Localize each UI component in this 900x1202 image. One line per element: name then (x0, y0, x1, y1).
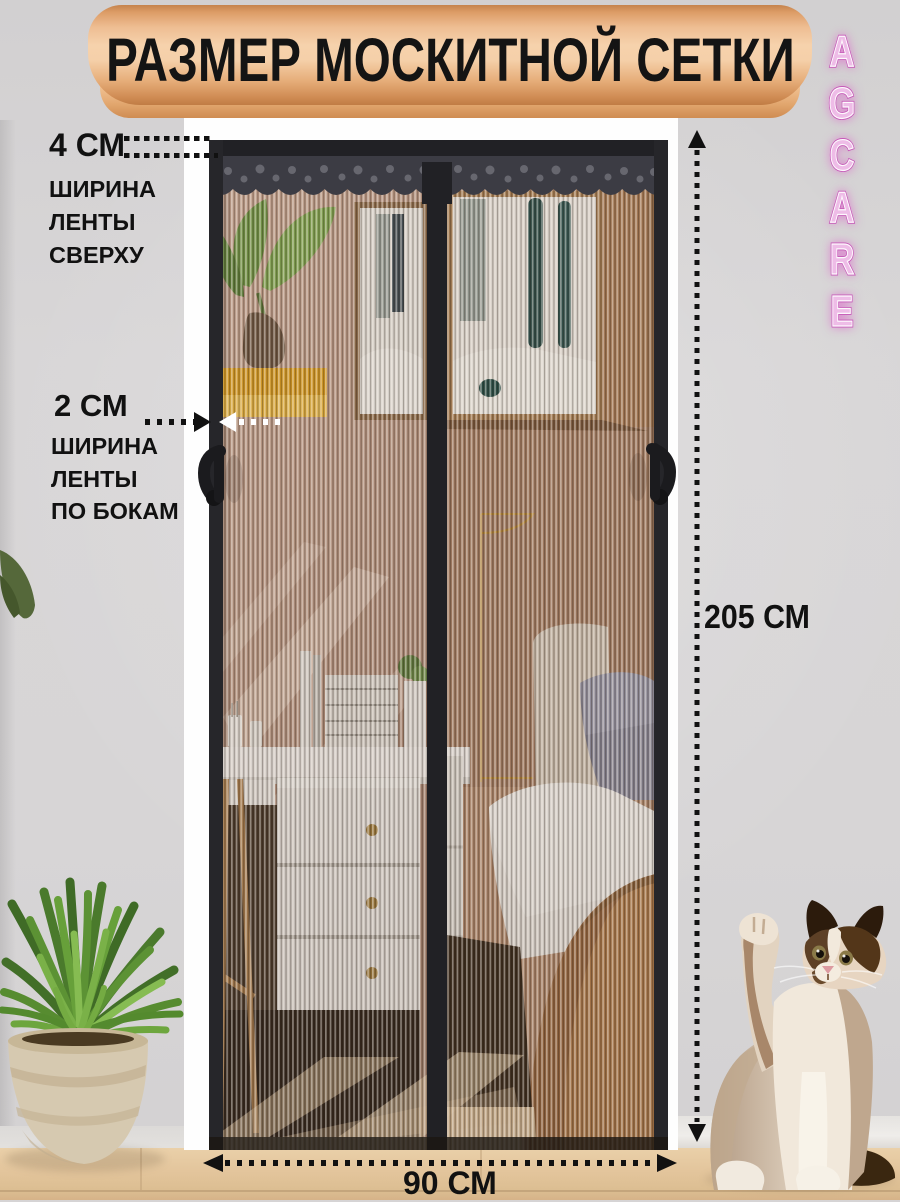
svg-text:A: A (830, 183, 855, 232)
svg-text:A: A (830, 27, 855, 76)
svg-text:E: E (831, 287, 854, 336)
svg-text:G: G (829, 79, 856, 128)
svg-text:C: C (830, 131, 855, 180)
svg-text:R: R (830, 235, 855, 284)
